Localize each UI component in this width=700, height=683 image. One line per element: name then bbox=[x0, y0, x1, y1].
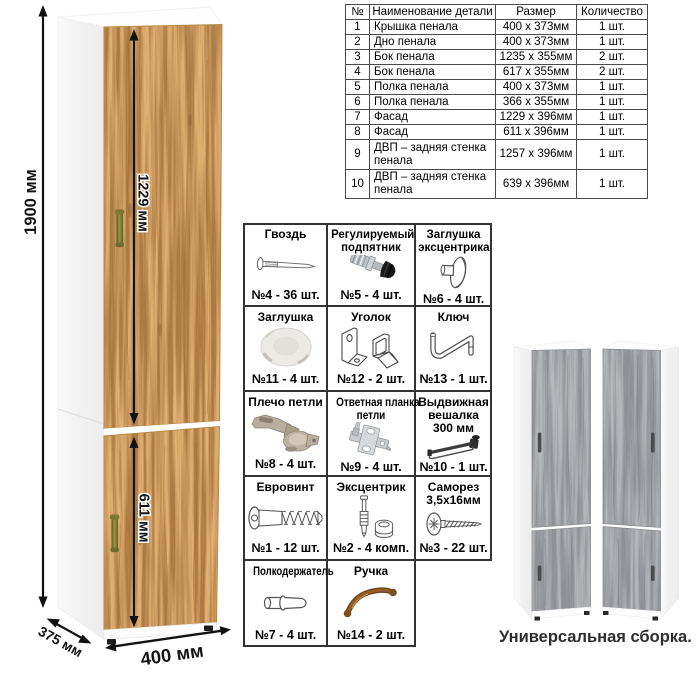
svg-text:375 мм: 375 мм bbox=[36, 623, 86, 660]
svg-text:400 мм: 400 мм bbox=[139, 640, 205, 670]
svg-text:1900 мм: 1900 мм bbox=[22, 169, 40, 235]
svg-text:1229 мм: 1229 мм bbox=[135, 174, 151, 232]
svg-text:611 мм: 611 мм bbox=[136, 494, 152, 543]
